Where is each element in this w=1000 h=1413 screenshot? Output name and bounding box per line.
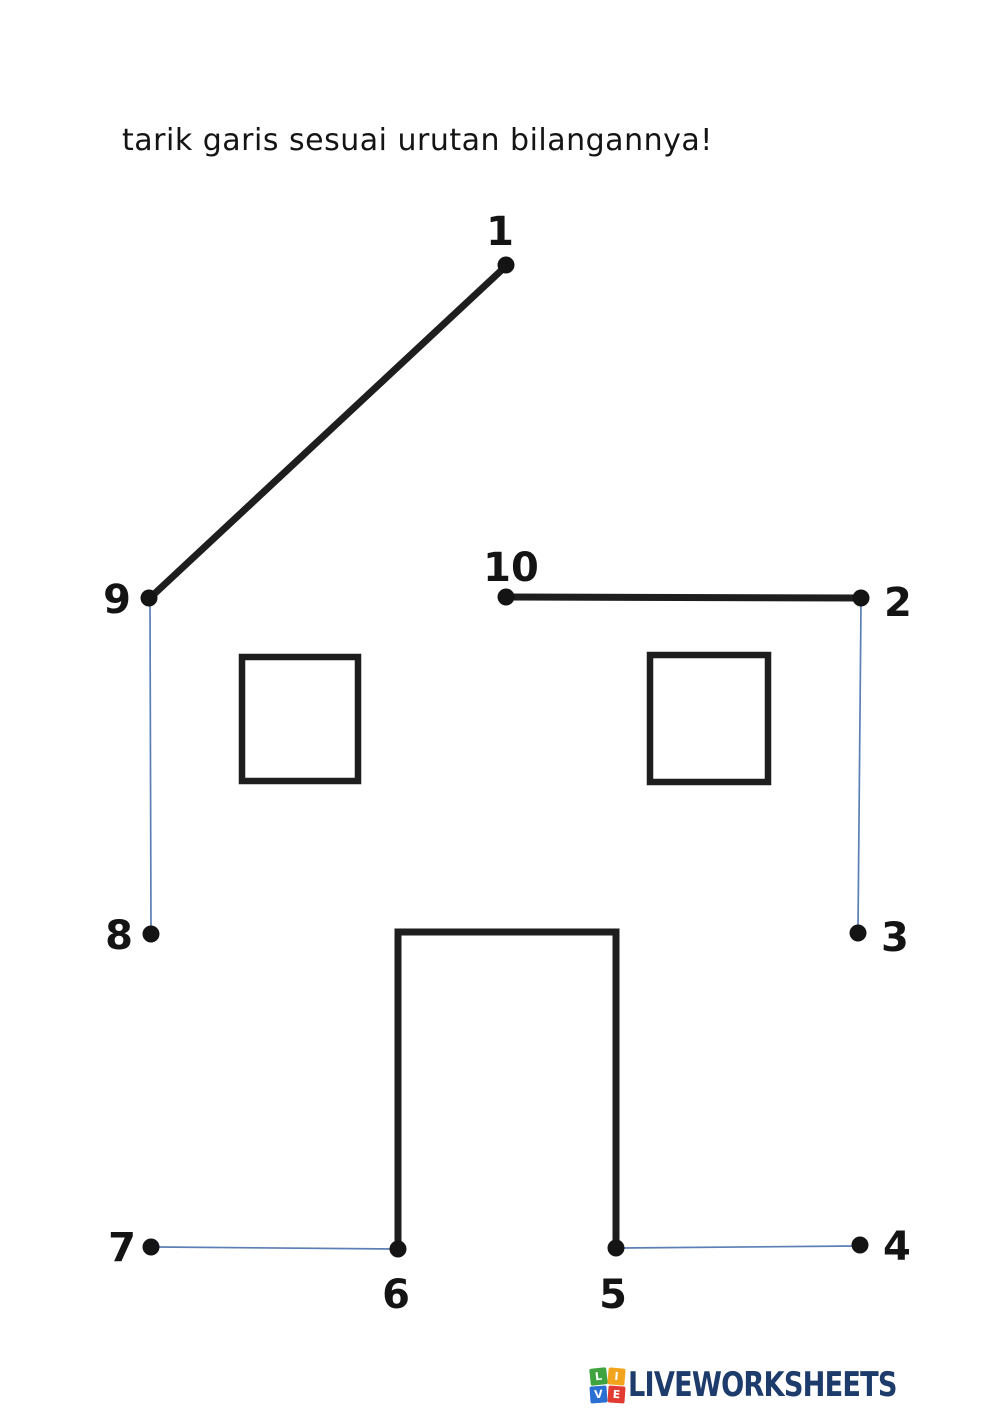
worksheet-page: tarik garis sesuai urutan bilangannya! 1… bbox=[0, 0, 1000, 1413]
dot-label-10: 10 bbox=[483, 545, 539, 591]
dot-label-8: 8 bbox=[105, 913, 133, 959]
drawn-line-5-4 bbox=[622, 1246, 855, 1248]
dot-8[interactable] bbox=[143, 926, 160, 943]
liveworksheets-logo-text: LIVEWORKSHEETS bbox=[628, 1365, 897, 1405]
dot-1[interactable] bbox=[498, 257, 515, 274]
dot-9[interactable] bbox=[141, 590, 158, 607]
drawn-line-2-3 bbox=[858, 605, 861, 929]
dot-7[interactable] bbox=[143, 1239, 160, 1256]
dot-3[interactable] bbox=[850, 925, 867, 942]
liveworksheets-logo-icon: LIVE bbox=[590, 1368, 625, 1403]
logo-cell-e: E bbox=[608, 1385, 626, 1403]
dot-label-6: 6 bbox=[382, 1272, 410, 1318]
dot-label-1: 1 bbox=[486, 209, 514, 255]
roof-left-line bbox=[151, 266, 506, 597]
dot-label-3: 3 bbox=[881, 915, 909, 961]
door-outline bbox=[398, 932, 616, 1248]
window-right bbox=[650, 655, 768, 782]
dot-label-5: 5 bbox=[599, 1272, 627, 1318]
logo-cell-v: V bbox=[590, 1385, 608, 1403]
logo-cell-i: I bbox=[607, 1367, 625, 1385]
drawn-line-7-6 bbox=[157, 1247, 395, 1249]
window-left bbox=[242, 657, 358, 781]
dot-4[interactable] bbox=[852, 1237, 869, 1254]
liveworksheets-logo[interactable]: LIVE LIVEWORKSHEETS bbox=[590, 1365, 964, 1405]
dot-label-2: 2 bbox=[884, 580, 912, 626]
drawn-line-9-8 bbox=[150, 605, 151, 930]
dot-label-4: 4 bbox=[883, 1224, 911, 1270]
dot-5[interactable] bbox=[608, 1240, 625, 1257]
dot-2[interactable] bbox=[853, 590, 870, 607]
connect-the-dots-canvas[interactable]: 12345678910 bbox=[0, 0, 1000, 1413]
dot-10[interactable] bbox=[498, 589, 515, 606]
dot-label-7: 7 bbox=[108, 1225, 136, 1271]
logo-cell-l: L bbox=[589, 1367, 608, 1386]
dot-6[interactable] bbox=[390, 1241, 407, 1258]
wall-top-line bbox=[506, 597, 861, 598]
dot-label-9: 9 bbox=[103, 577, 131, 623]
